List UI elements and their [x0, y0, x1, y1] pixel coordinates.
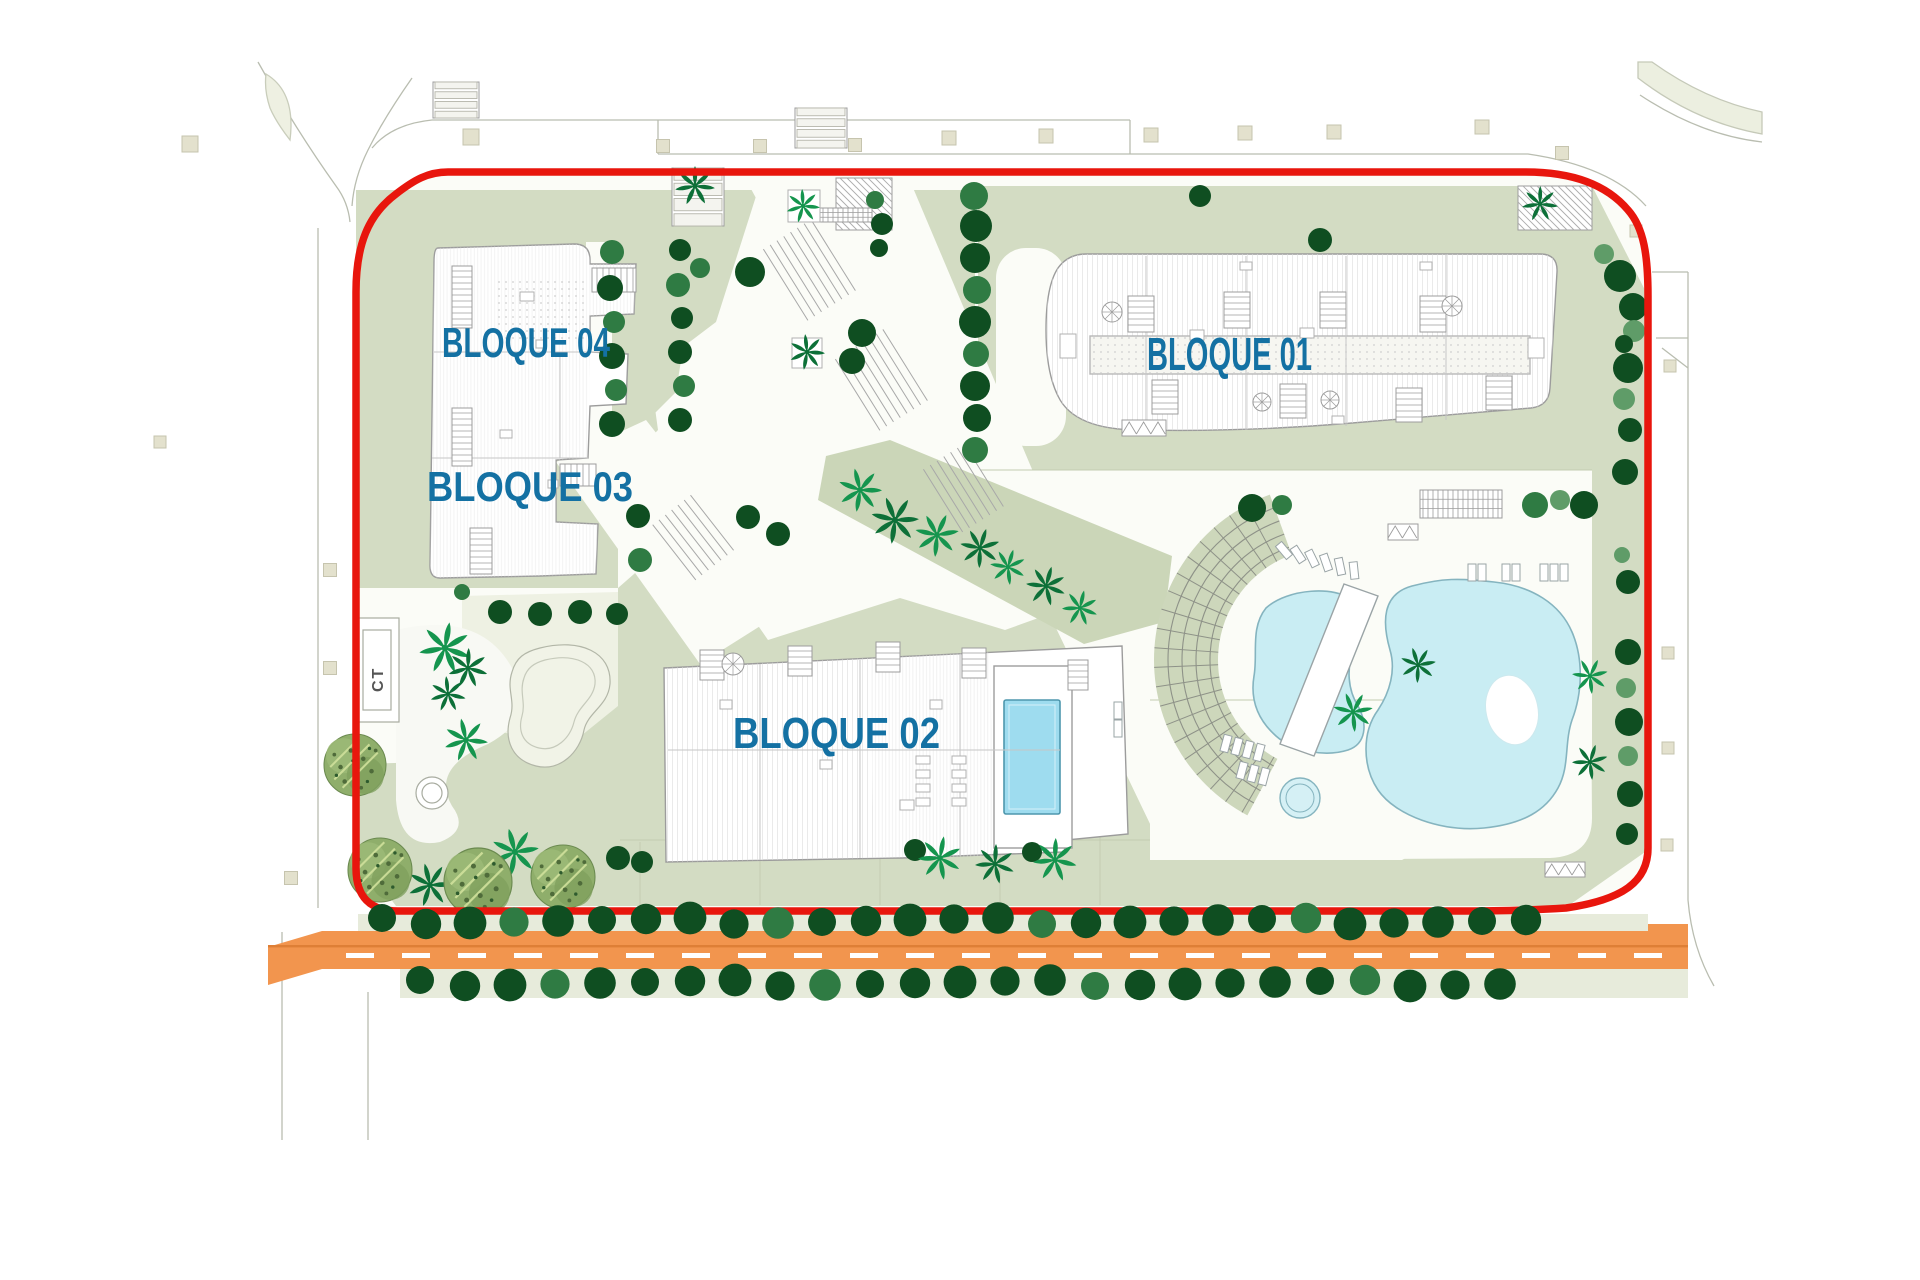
fountain-inner	[422, 783, 442, 803]
street-furniture-square	[182, 136, 198, 152]
road-dash	[1130, 953, 1158, 958]
tree-icon	[606, 846, 630, 870]
pergola-d	[1518, 186, 1592, 230]
road-dash	[794, 953, 822, 958]
road-tree-icon	[406, 966, 434, 994]
tree-icon	[1613, 353, 1643, 383]
building-stair	[1224, 292, 1250, 328]
street-furniture-square	[324, 662, 337, 675]
b02-roof-hatch	[664, 658, 874, 862]
context-island-leaf	[266, 74, 292, 140]
tree-icon	[1619, 293, 1647, 321]
tree-icon	[1272, 495, 1292, 515]
road-tree-icon	[719, 909, 748, 938]
tree-icon	[666, 273, 690, 297]
road-tree-icon	[631, 904, 661, 934]
label-bloque-01: BLOQUE 01	[1147, 328, 1312, 380]
road-dash	[850, 953, 878, 958]
street-furniture-square	[1662, 647, 1674, 659]
road-tree-icon	[944, 966, 977, 999]
stair-frame	[700, 650, 724, 680]
road-dash	[570, 953, 598, 958]
sun-lounger	[1468, 564, 1476, 581]
street-furniture-square	[1327, 125, 1341, 139]
tree-icon	[568, 600, 592, 624]
street-furniture-square	[463, 129, 479, 145]
road-tree-icon	[719, 964, 752, 997]
crosswalk-bar	[797, 140, 845, 148]
spiral-stair	[1321, 391, 1339, 409]
road-tree-icon	[542, 905, 574, 937]
roof-box	[1528, 338, 1544, 358]
street-furniture-square	[1039, 129, 1053, 143]
roof-box	[500, 430, 512, 438]
context-band-top-right	[1638, 62, 1762, 134]
building-stair	[1320, 292, 1346, 328]
roof-box	[916, 770, 930, 778]
street-furniture-square	[1556, 147, 1569, 160]
site-plan-drawing: BLOQUE 04 BLOQUE 03 BLOQUE 02 BLOQUE 01 …	[0, 0, 1920, 1280]
building-stair	[1152, 380, 1178, 414]
tree-icon	[1189, 185, 1211, 207]
sun-lounger	[1114, 702, 1122, 719]
context-curb-right	[1652, 272, 1714, 986]
building-stair	[1396, 388, 1422, 422]
crosswalk-bar	[674, 214, 722, 226]
tree-icon	[1617, 781, 1643, 807]
tree-icon	[1550, 490, 1570, 510]
road-dash	[1578, 953, 1606, 958]
road-tree-icon	[894, 904, 927, 937]
road-tree-icon	[631, 968, 659, 996]
road-tree-icon	[1114, 906, 1147, 939]
stair-frame	[962, 648, 986, 678]
label-bloque-02: BLOQUE 02	[733, 709, 940, 758]
road-tree-icon	[368, 904, 396, 932]
pergola-rail	[1420, 490, 1502, 518]
b02-pool	[1004, 700, 1060, 814]
roof-box	[952, 770, 966, 778]
road-tree-icon	[1169, 968, 1202, 1001]
roof-box	[1420, 262, 1432, 270]
building-stair	[452, 408, 472, 466]
tree-icon	[1616, 678, 1636, 698]
tree-icon	[599, 411, 625, 437]
road-tree-icon	[1468, 907, 1496, 935]
stair-frame	[876, 642, 900, 672]
tree-icon	[963, 404, 991, 432]
tree-icon	[1594, 244, 1614, 264]
tree-icon	[1618, 746, 1638, 766]
street-furniture-square	[1238, 126, 1252, 140]
road-tree-icon	[1028, 910, 1056, 938]
tree-icon	[454, 584, 470, 600]
building-stair	[1280, 384, 1306, 418]
tree-icon	[631, 851, 653, 873]
tree-icon	[1522, 492, 1548, 518]
road-tree-icon	[1511, 905, 1541, 935]
street-furniture-square	[1662, 742, 1674, 754]
tree-icon	[839, 348, 865, 374]
road-tree-icon	[494, 969, 527, 1002]
road-dash	[514, 953, 542, 958]
pergola-h2	[433, 82, 479, 118]
road-dash	[626, 953, 654, 958]
road-dash	[1298, 953, 1326, 958]
crosswalk-bar	[797, 119, 845, 127]
tree-icon	[606, 603, 628, 625]
street-furniture-square	[1475, 120, 1489, 134]
sun-lounger	[1550, 564, 1558, 581]
tree-icon	[597, 275, 623, 301]
tree-icon	[600, 240, 624, 264]
tree-icon	[690, 258, 710, 278]
street-furniture-square	[1661, 839, 1673, 851]
roof-box	[952, 784, 966, 792]
road-tree-icon	[1159, 906, 1188, 935]
tree-icon	[671, 307, 693, 329]
road-dash	[1186, 953, 1214, 958]
tree-icon	[668, 408, 692, 432]
road-tree-icon	[765, 971, 794, 1000]
building-stair	[962, 648, 986, 678]
building-stair	[788, 646, 812, 676]
sun-lounger	[1502, 564, 1510, 581]
pergola-rail	[820, 208, 872, 222]
tree-icon	[669, 239, 691, 261]
pergola-h2	[795, 108, 847, 148]
tree-icon	[528, 602, 552, 626]
tree-icon	[962, 437, 988, 463]
road-tree-icon	[1422, 906, 1454, 938]
pergola-v	[1122, 420, 1166, 436]
roof-box	[1060, 334, 1076, 358]
street-furniture-square	[285, 872, 298, 885]
tree-icon	[668, 340, 692, 364]
tree-icon	[1238, 494, 1266, 522]
road-tree-icon	[1440, 970, 1469, 999]
tree-icon	[1604, 260, 1636, 292]
road-tree-icon	[540, 969, 569, 998]
olive-tree-icon	[444, 848, 512, 916]
road-tree-icon	[982, 902, 1014, 934]
road-dash	[1018, 953, 1046, 958]
spiral-stair	[1253, 393, 1271, 411]
lagoon-pool	[1366, 579, 1580, 828]
stair-frame	[1068, 660, 1088, 690]
tree-icon	[735, 257, 765, 287]
sun-lounger	[1114, 720, 1122, 737]
road-tree-icon	[1334, 908, 1367, 941]
tree-icon	[1612, 459, 1638, 485]
sun-lounger	[1478, 564, 1486, 581]
pergola-frame	[1420, 490, 1502, 518]
road-tree-icon	[1291, 903, 1321, 933]
tree-icon	[871, 213, 893, 235]
label-ct: CT	[370, 667, 387, 692]
pergola-h2	[672, 168, 724, 226]
pergola-v	[1545, 862, 1586, 877]
tree-icon	[866, 191, 884, 209]
tree-icon	[766, 522, 790, 546]
spiral-stair	[722, 653, 744, 675]
road-tree-icon	[674, 902, 707, 935]
roof-box	[520, 292, 534, 301]
crosswalk-bar	[435, 82, 477, 89]
roof-box	[1240, 262, 1252, 270]
street-furniture-square	[657, 140, 670, 153]
site-plan-page: BLOQUE 04 BLOQUE 03 BLOQUE 02 BLOQUE 01 …	[0, 0, 1920, 1280]
tree-icon	[1618, 418, 1642, 442]
road-tree-icon	[1215, 968, 1244, 997]
sun-lounger	[1540, 564, 1548, 581]
road-lane-line	[268, 945, 1688, 947]
road-dash	[458, 953, 486, 958]
building-stair	[1486, 376, 1512, 410]
label-bloque-03: BLOQUE 03	[427, 463, 633, 510]
road-tree-icon	[411, 909, 441, 939]
building-stair	[700, 650, 724, 680]
road-tree-icon	[1306, 967, 1334, 995]
road-tree-icon	[1034, 964, 1066, 996]
tree-icon	[1616, 823, 1638, 845]
tree-icon	[1308, 228, 1332, 252]
building-stair	[1420, 296, 1446, 332]
road-dash	[1354, 953, 1382, 958]
road-dash	[1634, 953, 1662, 958]
building-stair	[876, 642, 900, 672]
tree-icon	[628, 548, 652, 572]
tree-icon	[960, 371, 990, 401]
tree-icon	[963, 341, 989, 367]
crosswalk-bar	[797, 108, 845, 116]
tree-icon	[1615, 639, 1641, 665]
street-furniture-square	[1664, 360, 1676, 372]
stair-frame	[788, 646, 812, 676]
street-furniture-square	[849, 139, 862, 152]
road-dash	[962, 953, 990, 958]
tree-icon	[848, 319, 876, 347]
road-dash	[402, 953, 430, 958]
label-bloque-04: BLOQUE 04	[442, 319, 610, 366]
roof-box	[916, 798, 930, 806]
tree-icon	[960, 243, 990, 273]
road-tree-icon	[1202, 904, 1234, 936]
tree-icon	[1616, 570, 1640, 594]
tree-icon	[960, 210, 992, 242]
road-tree-icon	[588, 906, 616, 934]
street-furniture-square	[1144, 128, 1158, 142]
tree-icon	[605, 379, 627, 401]
road-tree-icon	[939, 904, 968, 933]
road-dash	[682, 953, 710, 958]
street-furniture-square	[154, 436, 166, 448]
road-tree-icon	[1071, 908, 1101, 938]
street-furniture-square	[942, 131, 956, 145]
road-tree-icon	[808, 908, 836, 936]
road-tree-icon	[1259, 966, 1291, 998]
road-dash	[1466, 953, 1494, 958]
crosswalk-bar	[435, 92, 477, 99]
road-dash	[1242, 953, 1270, 958]
road-dash	[1410, 953, 1438, 958]
building-stair	[470, 528, 492, 574]
road-tree-icon	[1248, 905, 1276, 933]
road-dash	[906, 953, 934, 958]
road-tree-icon	[851, 906, 881, 936]
crosswalk-bar	[797, 130, 845, 138]
road-tree-icon	[900, 968, 930, 998]
roof-box	[900, 800, 914, 810]
road-tree-icon	[1379, 908, 1408, 937]
roof-box	[930, 700, 942, 709]
road-tree-icon	[762, 907, 794, 939]
road-tree-icon	[454, 907, 487, 940]
road-tree-icon	[450, 971, 480, 1001]
street-furniture-square	[324, 564, 337, 577]
road-tree-icon	[1394, 970, 1427, 1003]
building-stair	[1068, 660, 1088, 690]
road-tree-icon	[809, 969, 841, 1001]
road-tree-icon	[584, 967, 616, 999]
road-dash	[346, 953, 374, 958]
street-furniture-square	[754, 140, 767, 153]
road-dash	[1522, 953, 1550, 958]
roof-box	[820, 760, 832, 769]
context-curve-top-left-of-corner	[372, 120, 432, 148]
road-tree-icon	[1350, 965, 1380, 995]
tree-icon	[1615, 335, 1633, 353]
tree-icon	[1614, 547, 1630, 563]
crosswalk-bar	[435, 102, 477, 109]
spiral-stair	[1102, 302, 1122, 322]
tree-icon	[960, 182, 988, 210]
road-dash	[738, 953, 766, 958]
road-tree-icon	[856, 970, 884, 998]
roof-box	[952, 798, 966, 806]
building-stair	[1128, 296, 1154, 332]
olive-tree-icon	[531, 845, 595, 909]
tree-icon	[673, 375, 695, 397]
road-tree-icon	[1484, 968, 1516, 1000]
tree-icon	[736, 505, 760, 529]
tree-icon	[1613, 388, 1635, 410]
roof-box	[916, 784, 930, 792]
spiral-stair	[1442, 296, 1462, 316]
sun-lounger	[1512, 564, 1520, 581]
road-tree-icon	[1081, 972, 1109, 1000]
tree-icon	[959, 306, 991, 338]
tree-icon	[488, 600, 512, 624]
sun-lounger	[1560, 564, 1568, 581]
crosswalk-bar	[674, 199, 722, 211]
roof-box	[1332, 416, 1344, 424]
roof-box	[952, 756, 966, 764]
crosswalk-bar	[435, 111, 477, 118]
tree-icon	[1022, 842, 1042, 862]
tree-icon	[1570, 491, 1598, 519]
tree-icon	[963, 276, 991, 304]
road-tree-icon	[1125, 970, 1155, 1000]
road-tree-icon	[675, 966, 705, 996]
road-tree-icon	[499, 907, 528, 936]
roof-box	[720, 700, 732, 709]
road-dash	[1074, 953, 1102, 958]
road-tree-icon	[990, 966, 1019, 995]
pergola-v	[1388, 524, 1418, 540]
tree-icon	[870, 239, 888, 257]
sun-lounger	[1349, 562, 1359, 580]
tree-icon	[1615, 708, 1643, 736]
